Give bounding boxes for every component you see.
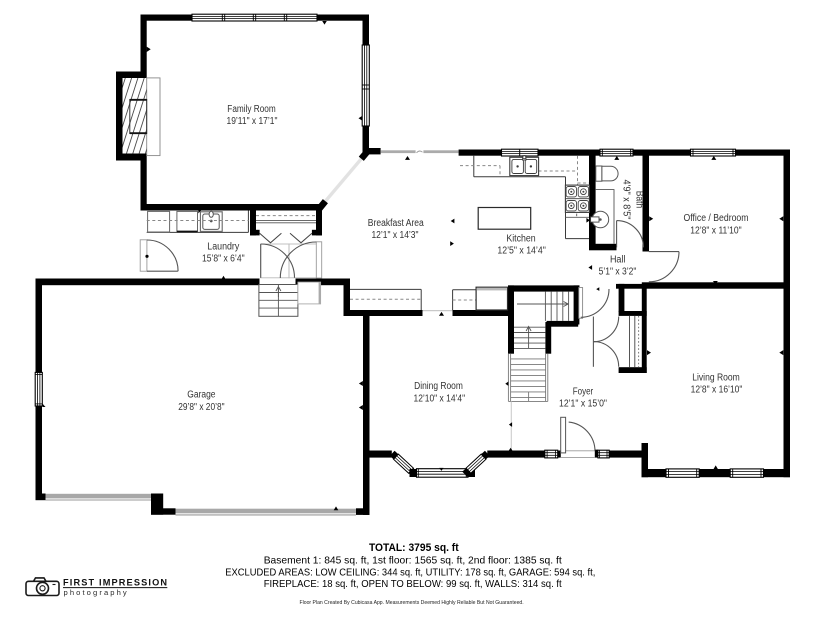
svg-text:4’9" x 8’5": 4’9" x 8’5": [620, 180, 631, 220]
svg-text:15’8" x 6’4": 15’8" x 6’4": [202, 254, 245, 265]
svg-text:FIRST IMPRESSION: FIRST IMPRESSION: [63, 577, 168, 587]
svg-text:Family Room: Family Room: [227, 104, 275, 115]
svg-text:Living Room: Living Room: [692, 373, 740, 384]
svg-text:Garage: Garage: [187, 390, 216, 401]
svg-text:12’1" x 14’3": 12’1" x 14’3": [371, 230, 418, 241]
svg-text:12’8" x 16’10": 12’8" x 16’10": [691, 385, 743, 396]
svg-text:FIREPLACE: 18 sq. ft, OPEN TO: FIREPLACE: 18 sq. ft, OPEN TO BELOW: 99 …: [264, 578, 562, 590]
svg-text:Basement 1: 845 sq. ft, 1st fl: Basement 1: 845 sq. ft, 1st floor: 1565 …: [264, 555, 562, 567]
svg-text:Breakfast Area: Breakfast Area: [368, 218, 424, 229]
svg-text:Hall: Hall: [610, 254, 626, 265]
svg-text:12’1" x 15’0": 12’1" x 15’0": [559, 399, 607, 410]
svg-text:EXCLUDED AREAS: LOW CEILING: 3: EXCLUDED AREAS: LOW CEILING: 344 sq. ft,…: [225, 566, 595, 578]
svg-text:5’1" x 3’2": 5’1" x 3’2": [599, 266, 637, 277]
svg-text:29’8" x 20’8": 29’8" x 20’8": [178, 402, 225, 413]
svg-text:12’5" x 14’4": 12’5" x 14’4": [497, 246, 546, 257]
svg-text:12’10" x 14’4": 12’10" x 14’4": [414, 394, 466, 405]
svg-text:Office / Bedroom: Office / Bedroom: [684, 213, 749, 224]
svg-text:19’11" x 17’1": 19’11" x 17’1": [227, 116, 278, 127]
svg-text:Laundry: Laundry: [207, 242, 239, 253]
svg-text:photography: photography: [64, 588, 129, 597]
svg-text:Kitchen: Kitchen: [506, 234, 535, 245]
svg-text:Foyer: Foyer: [573, 387, 594, 398]
svg-text:Floor Plan Created By Cubicasa: Floor Plan Created By Cubicasa App. Meas…: [300, 600, 525, 606]
svg-text:Dining Room: Dining Room: [414, 381, 463, 392]
svg-text:TOTAL: 3795 sq. ft: TOTAL: 3795 sq. ft: [369, 542, 459, 554]
svg-text:12’8" x 11’10": 12’8" x 11’10": [690, 226, 742, 237]
